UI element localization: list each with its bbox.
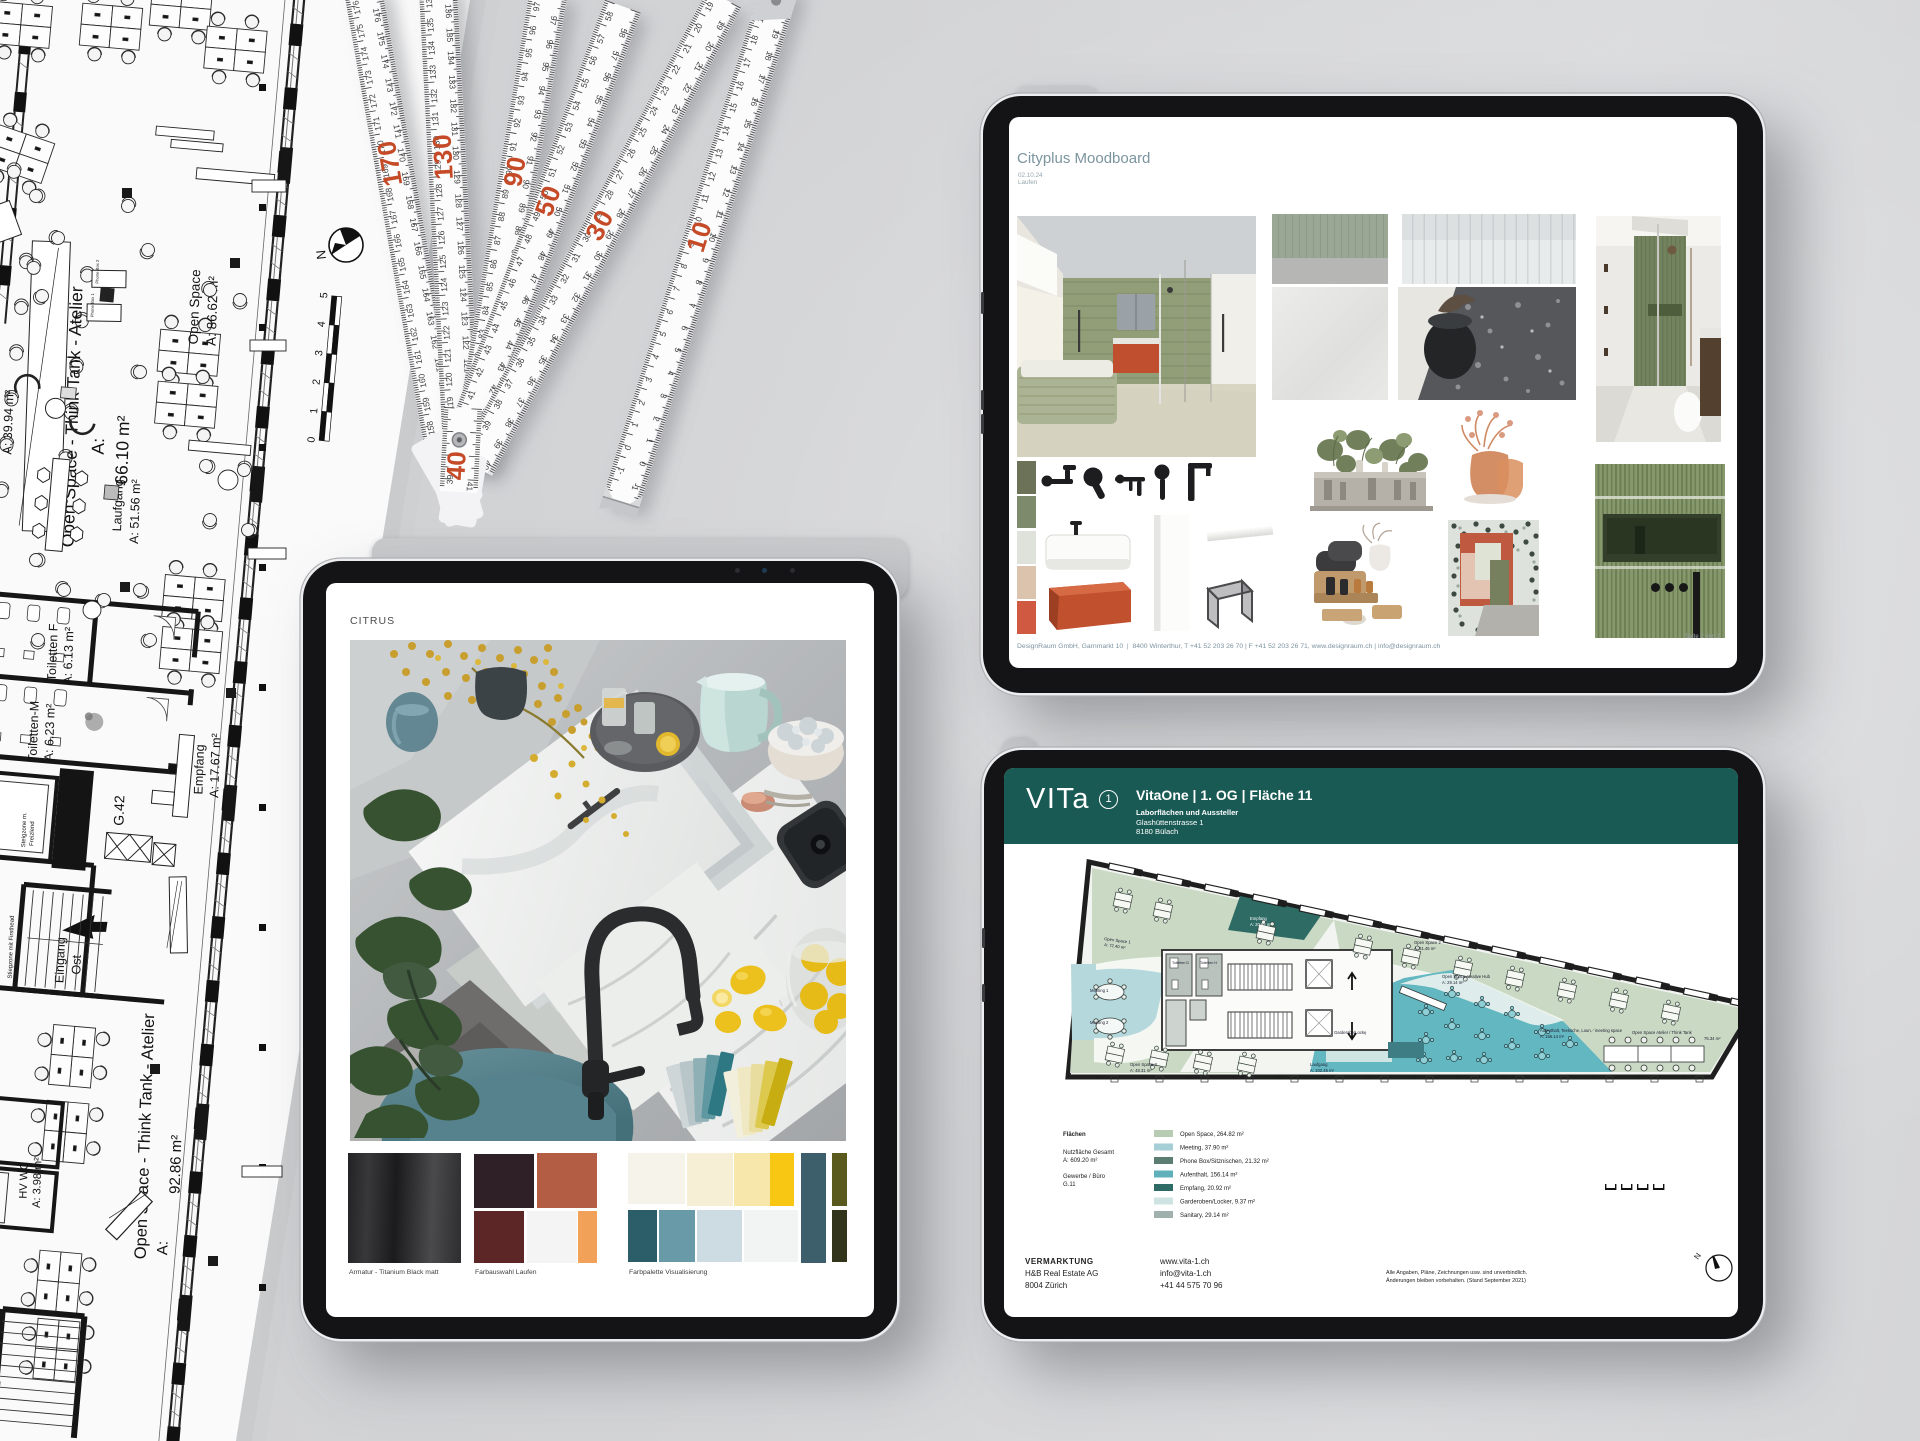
svg-text:97: 97 <box>531 1 542 12</box>
svg-text:Nutzfläche Gesamt: Nutzfläche Gesamt <box>1063 1150 1114 1156</box>
svg-text:Open Space creative Hub: Open Space creative Hub <box>1442 974 1491 979</box>
svg-text:127: 127 <box>454 216 465 231</box>
svg-text:134: 134 <box>426 40 437 55</box>
svg-text:84: 84 <box>480 305 491 316</box>
svg-text:93: 93 <box>515 95 526 106</box>
svg-text:126: 126 <box>456 240 467 255</box>
svg-text:Flächen: Flächen <box>1063 1132 1086 1138</box>
svg-text:132: 132 <box>448 99 459 114</box>
svg-text:Toiletten H: Toiletten H <box>1200 961 1217 965</box>
svg-text:121: 121 <box>442 348 453 363</box>
svg-text:A: 61.45 m²: A: 61.45 m² <box>1414 946 1436 951</box>
svg-text:135: 135 <box>445 28 456 43</box>
svg-text:136: 136 <box>443 4 454 19</box>
svg-text:89: 89 <box>516 202 527 213</box>
svg-text:Sanitary, 29.14 m²: Sanitary, 29.14 m² <box>1180 1213 1229 1219</box>
svg-text:92: 92 <box>511 117 522 128</box>
svg-text:94: 94 <box>536 85 547 96</box>
svg-text:135: 135 <box>425 17 436 32</box>
svg-text:133: 133 <box>427 64 438 79</box>
svg-text:86: 86 <box>488 258 499 269</box>
svg-text:92: 92 <box>528 131 539 142</box>
svg-text:89: 89 <box>499 188 510 199</box>
svg-text:133: 133 <box>447 75 458 90</box>
svg-text:Aufenthalt, 156.14 m²: Aufenthalt, 156.14 m² <box>1180 1173 1237 1179</box>
svg-text:Gewerbe / Büro: Gewerbe / Büro <box>1063 1174 1106 1180</box>
svg-text:88: 88 <box>496 211 507 222</box>
svg-text:136: 136 <box>424 0 435 8</box>
svg-text:Alle Angaben, Pläne, Zeichnung: Alle Angaben, Pläne, Zeichnungen usw. si… <box>1386 1270 1527 1276</box>
svg-text:125: 125 <box>437 254 448 269</box>
svg-text:96: 96 <box>527 24 538 35</box>
svg-text:A: 20.92 m²: A: 20.92 m² <box>1250 922 1272 927</box>
svg-text:Meeting, 37.90 m²: Meeting, 37.90 m² <box>1180 1146 1228 1152</box>
svg-text:128: 128 <box>434 183 445 198</box>
svg-text:Open Space, 264.82 m²: Open Space, 264.82 m² <box>1180 1132 1244 1138</box>
svg-text:A: 29.14 m²: A: 29.14 m² <box>1442 980 1464 985</box>
svg-text:Phone Box/Sitznischen, 21.32 m: Phone Box/Sitznischen, 21.32 m² <box>1180 1159 1269 1165</box>
svg-text:134: 134 <box>446 51 457 66</box>
svg-text:Toiletten D: Toiletten D <box>1172 961 1189 965</box>
svg-text:VERMARKTUNG: VERMARKTUNG <box>1025 1257 1094 1266</box>
svg-text:125: 125 <box>457 264 468 279</box>
svg-text:8004 Zürich: 8004 Zürich <box>1025 1281 1067 1290</box>
svg-text:Open Space 3: Open Space 3 <box>1130 1062 1157 1067</box>
svg-text:123: 123 <box>440 301 451 316</box>
svg-text:128: 128 <box>453 193 464 208</box>
svg-text:132: 132 <box>429 88 440 103</box>
svg-text:Meeting 2: Meeting 2 <box>1090 1020 1109 1025</box>
svg-text:Garderobe/Lockę: Garderobe/Lockę <box>1334 1030 1367 1035</box>
svg-text:info@vita-1.ch: info@vita-1.ch <box>1160 1269 1211 1278</box>
svg-text:75.34 m²: 75.34 m² <box>1704 1036 1721 1041</box>
svg-text:A: 102.45 m²: A: 102.45 m² <box>1310 1068 1335 1073</box>
svg-text:A: 48.31 m²: A: 48.31 m² <box>1130 1068 1152 1073</box>
svg-text:Garderoben/Locker, 9.37 m²: Garderoben/Locker, 9.37 m² <box>1180 1200 1255 1206</box>
svg-text:95: 95 <box>523 47 534 58</box>
svg-text:Empfang, 20.92 m²: Empfang, 20.92 m² <box>1180 1186 1231 1192</box>
svg-text:126: 126 <box>436 230 447 245</box>
svg-text:93: 93 <box>532 109 543 120</box>
svg-text:A: 609.20 m²: A: 609.20 m² <box>1063 1158 1097 1164</box>
svg-text:96: 96 <box>544 39 555 50</box>
svg-text:Open Space Atelier / Think Tan: Open Space Atelier / Think Tank <box>1632 1030 1693 1035</box>
svg-text:87: 87 <box>492 235 503 246</box>
svg-text:Aufenthalt, Teeküche, Loun／mee: Aufenthalt, Teeküche, Loun／meeting space <box>1540 1028 1623 1033</box>
svg-text:Änderungen bleiben vorbehalten: Änderungen bleiben vorbehalten. (Stand S… <box>1386 1277 1526 1284</box>
svg-text:122: 122 <box>441 325 452 340</box>
svg-text:94: 94 <box>519 71 530 82</box>
svg-text:95: 95 <box>540 61 551 72</box>
svg-text:123: 123 <box>459 311 470 326</box>
svg-text:www.vita-1.ch: www.vita-1.ch <box>1159 1257 1209 1266</box>
svg-text:H&B Real Estate AG: H&B Real Estate AG <box>1025 1269 1098 1278</box>
svg-text:90: 90 <box>497 153 532 188</box>
svg-text:130: 130 <box>427 133 459 181</box>
svg-text:85: 85 <box>484 281 495 292</box>
svg-text:131: 131 <box>430 111 441 126</box>
svg-text:Open Space 2: Open Space 2 <box>1414 940 1441 945</box>
svg-text:N: N <box>1692 1251 1703 1261</box>
svg-text:97: 97 <box>548 15 559 26</box>
svg-text:A:: A: 156.14 m² <box>1540 1034 1565 1039</box>
svg-text:127: 127 <box>435 206 446 221</box>
svg-text:124: 124 <box>458 287 469 302</box>
svg-text:Meeting 1: Meeting 1 <box>1090 988 1109 993</box>
svg-text:124: 124 <box>439 277 450 292</box>
svg-text:122: 122 <box>461 335 472 350</box>
svg-text:Laufgang: Laufgang <box>1310 1062 1328 1067</box>
svg-text:41: 41 <box>465 482 475 492</box>
svg-text:+41 44 575 70 96: +41 44 575 70 96 <box>1160 1281 1223 1290</box>
svg-text:120: 120 <box>444 372 455 387</box>
svg-text:G.11: G.11 <box>1063 1182 1076 1188</box>
svg-text:Empfang: Empfang <box>1250 916 1267 921</box>
svg-text:39: 39 <box>444 474 454 484</box>
svg-text:91: 91 <box>507 141 518 152</box>
